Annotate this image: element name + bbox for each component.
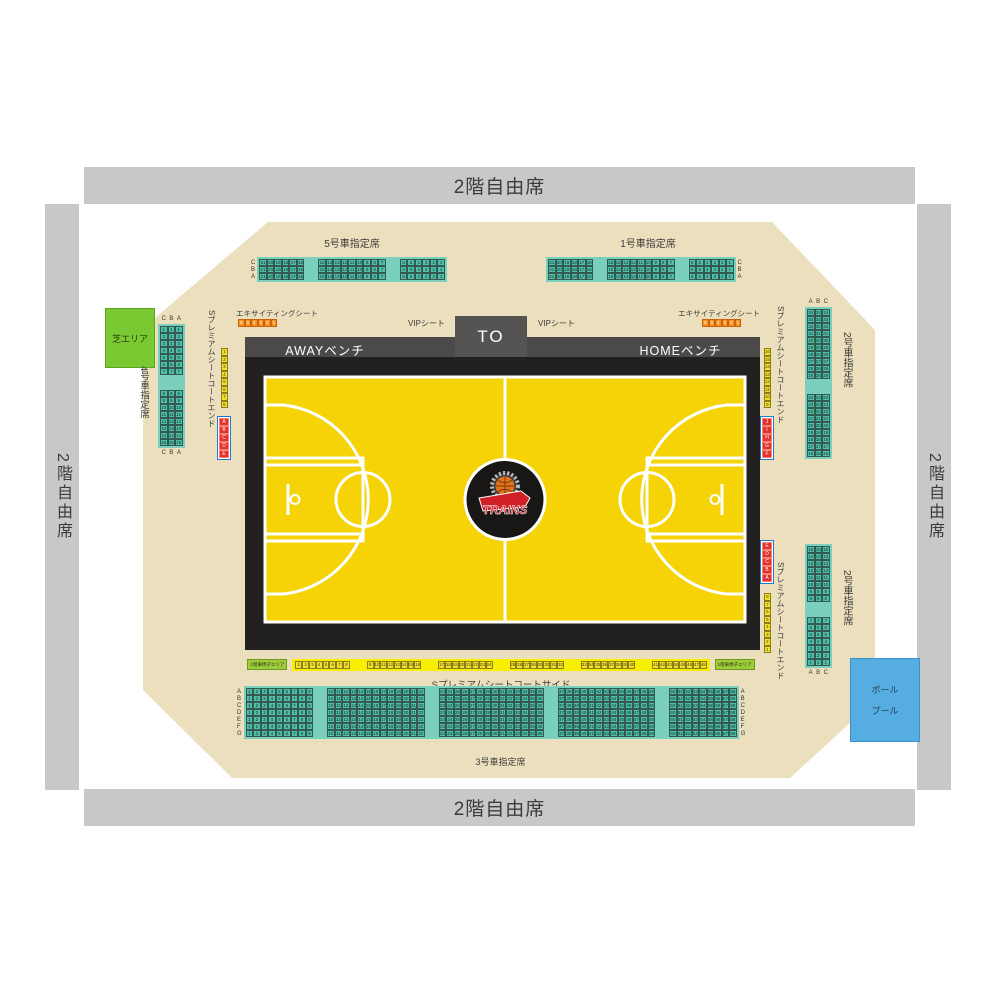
seat[interactable]: 8 [660,266,668,273]
seat[interactable]: 16 [372,695,380,702]
seat[interactable]: 38 [565,709,573,716]
seat[interactable]: 17 [380,709,388,716]
seat[interactable]: 1 [726,266,734,273]
seat[interactable]: 13 [350,702,358,709]
seat[interactable]: 36 [536,709,544,716]
seat[interactable]: 5 [822,631,830,638]
seat[interactable]: 16 [297,266,305,273]
seat[interactable]: 25 [815,372,823,379]
seat[interactable]: 23 [439,695,447,702]
seat-block[interactable]: 4142434445464748 [652,661,706,669]
seat[interactable]: 43 [603,723,611,730]
seat[interactable]: 12 [341,259,349,266]
seat[interactable]: 2 [815,652,823,659]
seat[interactable]: 10 [327,695,335,702]
seat[interactable]: 35 [529,709,537,716]
seat[interactable]: 28 [476,723,484,730]
seat[interactable]: A [762,574,772,582]
seat[interactable]: 53 [692,716,700,723]
seat[interactable]: 22 [417,709,425,716]
seat[interactable]: 45 [679,661,686,669]
seat[interactable]: 53 [692,723,700,730]
seat[interactable]: 19 [822,429,830,436]
seat[interactable]: 13 [350,723,358,730]
section-car4-grid[interactable]: CBA1112223334445556667778889991010101111… [158,316,185,456]
seat[interactable]: 1 [246,702,254,709]
seat[interactable]: 12 [764,378,771,386]
seat[interactable]: 20 [402,716,410,723]
seat[interactable]: 42 [595,730,603,737]
seat[interactable]: 2 [822,652,830,659]
seat[interactable]: 1 [726,273,734,280]
seat[interactable]: 18 [571,273,579,280]
seat[interactable]: 8 [221,401,228,409]
seat[interactable]: 32 [506,702,514,709]
seat[interactable]: 12 [341,273,349,280]
seat[interactable]: 3 [711,266,719,273]
seat[interactable]: 49 [648,723,656,730]
seat[interactable]: 56 [714,702,722,709]
seat[interactable]: 11 [348,259,356,266]
seat[interactable]: 6 [689,273,697,280]
seat[interactable]: 9 [168,397,176,404]
seat[interactable]: 56 [714,695,722,702]
seat[interactable]: 57 [722,730,730,737]
seat[interactable]: 14 [168,432,176,439]
seat[interactable]: 27 [469,723,477,730]
seat[interactable]: 20 [402,688,410,695]
seat[interactable]: 47 [633,709,641,716]
seat[interactable]: 22 [417,723,425,730]
seat[interactable]: 15 [607,259,615,266]
seat[interactable]: 20 [815,422,823,429]
seat[interactable]: 12 [160,418,168,425]
seat[interactable]: 37 [558,716,566,723]
seat[interactable]: 3 [221,363,228,371]
seat[interactable]: 1 [295,661,302,669]
seat[interactable]: C [762,558,772,566]
seat[interactable]: 22 [417,695,425,702]
seat[interactable]: 23 [815,401,823,408]
seat[interactable]: 51 [677,716,685,723]
seat-block[interactable]: 2526272829303132 [510,661,564,669]
seat[interactable]: 21 [410,702,418,709]
seat[interactable]: 50 [669,702,677,709]
seat[interactable]: 26 [815,365,823,372]
seat[interactable]: 1 [168,326,176,333]
seat[interactable]: 6 [283,730,291,737]
seat[interactable]: 20 [402,709,410,716]
seat[interactable]: 43 [603,695,611,702]
seat[interactable]: 34 [822,309,830,316]
seat[interactable]: 50 [669,723,677,730]
seat[interactable]: 3 [175,340,183,347]
seat[interactable]: 28 [807,351,815,358]
seat[interactable]: 38 [565,702,573,709]
seat[interactable]: 46 [625,723,633,730]
seat[interactable]: 15 [318,266,326,273]
seat[interactable]: 17 [578,266,586,273]
seat[interactable]: 13 [175,425,183,432]
seat[interactable]: 45 [618,723,626,730]
seat[interactable]: 33 [822,316,830,323]
seat[interactable]: 45 [618,688,626,695]
seat[interactable]: 28 [476,709,484,716]
ball-pool-area[interactable]: ボール プール [850,658,920,742]
seat[interactable]: 58 [729,730,737,737]
seat[interactable]: 54 [699,688,707,695]
seat[interactable]: 29 [815,344,823,351]
seat[interactable]: 11 [348,273,356,280]
seat[interactable]: 5 [221,378,228,386]
seat[interactable]: 7 [378,266,386,273]
seat-block[interactable]: 212019181716212019181716212019181716 [259,259,304,280]
seat[interactable]: 10 [356,266,364,273]
seat[interactable]: 23 [479,661,486,669]
seat[interactable]: 57 [722,709,730,716]
seat[interactable]: 23 [439,702,447,709]
seat[interactable]: 42 [659,661,666,669]
seat[interactable]: 49 [648,702,656,709]
seat[interactable]: 6 [160,361,168,368]
seat[interactable]: 3 [261,702,269,709]
seat[interactable]: 8 [764,593,771,601]
seat[interactable]: 5 [276,723,284,730]
seat[interactable]: 40 [580,723,588,730]
seat[interactable]: 19 [563,266,571,273]
seat[interactable]: 6 [689,259,697,266]
seat[interactable]: 36 [536,730,544,737]
seat[interactable]: 3 [261,709,269,716]
seat[interactable]: 35 [529,716,537,723]
premium-side-seats[interactable]: 1234567891011121314151617181920212223242… [292,659,709,671]
seat[interactable]: 52 [684,730,692,737]
seat[interactable]: 6 [807,624,815,631]
seat[interactable]: 7 [667,273,675,280]
seat[interactable]: 55 [707,716,715,723]
seat[interactable]: 43 [666,661,673,669]
seat[interactable]: 8 [371,273,379,280]
seat[interactable]: 13 [764,371,771,379]
seat[interactable]: 10 [327,730,335,737]
seat[interactable]: 37 [558,723,566,730]
seat[interactable]: 1 [437,259,445,266]
seat[interactable]: 4 [815,638,823,645]
seat[interactable]: 24 [446,723,454,730]
seat-block[interactable]: 12345678 [295,661,349,669]
seat[interactable]: D [762,550,772,558]
seat[interactable]: 13 [350,730,358,737]
seat[interactable]: 15 [175,439,183,446]
seat[interactable]: 9 [652,259,660,266]
seat[interactable]: 8 [298,695,306,702]
seat[interactable]: 1 [807,659,815,666]
seat[interactable]: 48 [640,688,648,695]
seat[interactable]: B [219,426,229,434]
seat[interactable]: F [762,450,772,458]
seat[interactable]: 14 [357,730,365,737]
seat[interactable]: 20 [402,695,410,702]
seat[interactable]: 13 [333,259,341,266]
seat[interactable]: 5 [276,709,284,716]
seat[interactable]: 51 [677,688,685,695]
seat[interactable]: 4 [316,661,323,669]
seat[interactable]: 14 [615,273,623,280]
seat[interactable]: 17 [380,695,388,702]
seat[interactable]: 12 [815,567,823,574]
seat[interactable]: 47 [633,730,641,737]
seat[interactable]: 2 [430,259,438,266]
seat[interactable]: 26 [461,695,469,702]
seat[interactable]: 10 [645,266,653,273]
seat[interactable]: 29 [807,344,815,351]
seat[interactable]: 28 [476,702,484,709]
seat[interactable]: 58 [729,688,737,695]
seat[interactable]: 14 [807,553,815,560]
seat[interactable]: 32 [807,323,815,330]
seat[interactable]: 8 [343,661,350,669]
seat[interactable]: 58 [729,702,737,709]
seat[interactable]: 14 [326,266,334,273]
seat[interactable]: 21 [822,415,830,422]
seat-block[interactable]: 654321654321654321 [400,259,445,280]
seat[interactable]: 2 [253,709,261,716]
seat[interactable]: 2 [719,259,727,266]
seat[interactable]: 4 [807,638,815,645]
seat[interactable]: 9 [306,730,314,737]
seat[interactable]: 25 [454,695,462,702]
seat[interactable]: 40 [580,702,588,709]
seat[interactable]: 10 [160,404,168,411]
seat[interactable]: 8 [371,266,379,273]
seat[interactable]: 1 [175,326,183,333]
seat[interactable]: 5 [276,716,284,723]
seat[interactable]: 21 [410,730,418,737]
seat[interactable]: 30 [491,688,499,695]
seat[interactable]: 10 [327,688,335,695]
seat[interactable]: E [219,450,229,458]
wheelchair-area-right[interactable]: 1階車椅子エリア [715,659,755,670]
seat[interactable]: 34 [521,695,529,702]
seat[interactable]: 20 [556,273,564,280]
seat[interactable]: 17 [578,273,586,280]
seat[interactable]: 56 [714,709,722,716]
seat[interactable]: 13 [350,695,358,702]
seat[interactable]: 13 [350,716,358,723]
seat[interactable]: 39 [573,702,581,709]
seat[interactable]: 52 [684,723,692,730]
seat[interactable]: 2 [175,333,183,340]
seat[interactable]: 53 [692,695,700,702]
seat[interactable]: 5 [407,259,415,266]
seat[interactable]: 4 [415,259,423,266]
seat[interactable]: 23 [439,688,447,695]
seat[interactable]: 42 [595,709,603,716]
seat[interactable]: 39 [622,661,629,669]
seat[interactable]: 31 [499,730,507,737]
seat[interactable]: 14 [357,723,365,730]
seat[interactable]: 54 [699,709,707,716]
seat[interactable]: 18 [387,723,395,730]
seat[interactable]: 2 [807,652,815,659]
seat[interactable]: 41 [588,730,596,737]
seat[interactable]: 20 [556,266,564,273]
seat-block[interactable]: 212019181716212019181716212019181716 [548,259,593,280]
seat[interactable]: 7 [291,730,299,737]
seat[interactable]: 5 [175,354,183,361]
seat[interactable]: 13 [333,273,341,280]
seat[interactable]: 48 [640,730,648,737]
seat[interactable]: 3 [309,661,316,669]
seat[interactable]: 12 [387,661,394,669]
seat[interactable]: 36 [536,702,544,709]
seat[interactable]: 22 [417,716,425,723]
seat[interactable]: 47 [693,661,700,669]
seat[interactable]: 5 [407,273,415,280]
seat-block[interactable]: 1718192021222324 [438,661,492,669]
seat[interactable]: 22 [807,408,815,415]
seat[interactable]: 7 [291,723,299,730]
seat[interactable]: 24 [446,688,454,695]
seat[interactable]: 21 [548,259,556,266]
seat[interactable]: 21 [548,273,556,280]
seat[interactable]: 50 [669,716,677,723]
seat[interactable]: 50 [669,688,677,695]
seat[interactable]: 44 [610,702,618,709]
seat[interactable]: 24 [446,695,454,702]
seat[interactable]: 11 [175,411,183,418]
seat[interactable]: 18 [387,730,395,737]
seat[interactable]: 15 [168,439,176,446]
seat[interactable]: 33 [514,730,522,737]
seat[interactable]: 25 [454,723,462,730]
seat[interactable]: 18 [571,259,579,266]
seat[interactable]: 35 [594,661,601,669]
seat[interactable]: 33 [514,723,522,730]
seat[interactable]: 6 [221,386,228,394]
seat[interactable]: 55 [707,688,715,695]
seat[interactable]: 7 [291,702,299,709]
seat[interactable]: 4 [704,273,712,280]
seat-block[interactable]: 111222333444555666777 [160,326,183,375]
seat[interactable]: 5 [168,354,176,361]
seat[interactable]: 51 [677,723,685,730]
seat[interactable]: 54 [699,723,707,730]
seat[interactable]: 34 [521,730,529,737]
seat[interactable]: 4 [175,347,183,354]
seat[interactable]: 41 [652,661,659,669]
seat[interactable]: 11 [764,386,771,394]
seat[interactable]: 8 [822,595,830,602]
seat[interactable]: 37 [558,688,566,695]
seat[interactable]: 16 [586,266,594,273]
seat[interactable]: 3 [822,645,830,652]
seat[interactable]: 19 [563,273,571,280]
seat[interactable]: 34 [521,688,529,695]
seat[interactable]: 40 [580,695,588,702]
seat[interactable]: 3 [422,259,430,266]
seat[interactable]: 17 [380,688,388,695]
seat[interactable]: 35 [529,702,537,709]
seat[interactable]: 31 [815,330,823,337]
seat[interactable]: 52 [684,702,692,709]
seat[interactable]: 28 [476,716,484,723]
seat[interactable]: 14 [160,432,168,439]
seat[interactable]: 12 [341,266,349,273]
seat[interactable]: 7 [815,617,823,624]
seat[interactable]: 30 [822,337,830,344]
seat[interactable]: 19 [274,259,282,266]
seat[interactable]: 2 [253,695,261,702]
seat[interactable]: 56 [714,716,722,723]
seat[interactable]: 11 [822,574,830,581]
seat[interactable]: 56 [714,730,722,737]
seat[interactable]: 53 [692,702,700,709]
seat[interactable]: 13 [350,688,358,695]
seat[interactable]: 13 [168,425,176,432]
seat[interactable]: 43 [603,702,611,709]
seat[interactable]: 34 [521,709,529,716]
seat[interactable]: 45 [618,730,626,737]
premium-end-right-upper-yellow-seats[interactable]: 161514131211109 [764,348,771,408]
seat[interactable]: 31 [499,695,507,702]
seat[interactable]: 14 [357,709,365,716]
seat[interactable]: 15 [365,695,373,702]
seat[interactable]: 48 [640,709,648,716]
seat[interactable]: 44 [610,688,618,695]
seat[interactable]: 6 [689,266,697,273]
seat[interactable]: 12 [342,695,350,702]
seat[interactable]: 26 [461,730,469,737]
seat[interactable]: 30 [491,730,499,737]
seat[interactable]: 25 [454,716,462,723]
premium-end-left-yellow-seats[interactable]: 12345678 [221,348,228,408]
seat[interactable]: 22 [815,408,823,415]
seat[interactable]: 1 [221,348,228,356]
seat[interactable]: 29 [484,688,492,695]
seat[interactable]: 16 [764,348,771,356]
seat[interactable]: 45 [618,709,626,716]
seat[interactable]: 34 [588,661,595,669]
seat[interactable]: 9 [306,723,314,730]
seat[interactable]: 20 [459,661,466,669]
seat[interactable]: 9 [815,588,823,595]
seat[interactable]: 50 [669,695,677,702]
seat[interactable]: 17 [289,259,297,266]
seat[interactable]: 29 [484,716,492,723]
seat[interactable]: 25 [454,709,462,716]
seat[interactable]: 43 [603,730,611,737]
seat[interactable]: 21 [807,415,815,422]
seat[interactable]: 52 [684,695,692,702]
seat[interactable]: 15 [607,273,615,280]
seat[interactable]: 14 [357,716,365,723]
seat[interactable]: 32 [506,688,514,695]
seat[interactable]: 6 [283,709,291,716]
seat[interactable]: 38 [565,716,573,723]
seat[interactable]: 1 [735,319,742,327]
seat[interactable]: 13 [160,425,168,432]
seat[interactable]: 50 [669,730,677,737]
seat[interactable]: 19 [395,688,403,695]
seat[interactable]: 9 [306,702,314,709]
seat[interactable]: 23 [439,723,447,730]
seat[interactable]: 6 [822,624,830,631]
seat[interactable]: 34 [521,723,529,730]
seat[interactable]: 55 [707,695,715,702]
seat[interactable]: 10 [807,581,815,588]
seat[interactable]: 23 [807,401,815,408]
